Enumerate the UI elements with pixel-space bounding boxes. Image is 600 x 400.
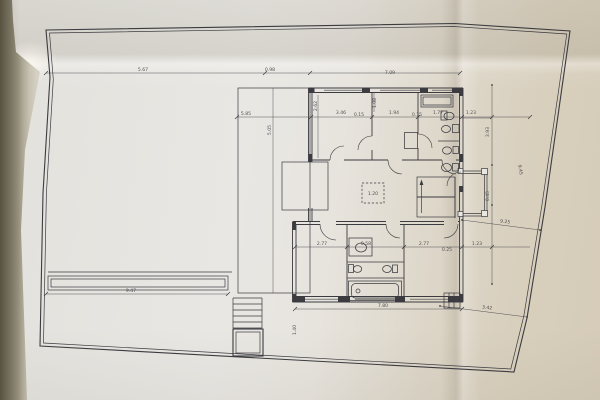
dimension-label: 2.77	[317, 241, 327, 247]
floor-plan-drawing: 5.670.987.095.853.460.151.940.151.771.23…	[0, 0, 600, 400]
dimension-label: 0.15	[412, 112, 422, 118]
planter-wall	[48, 272, 232, 290]
dimension-label: 7.80	[378, 303, 388, 309]
bathtub	[349, 281, 402, 301]
dimension-label: 5.67	[138, 67, 148, 73]
bidet-bowl	[383, 266, 392, 273]
dimension-labels: 5.670.987.095.853.460.151.940.151.771.23…	[126, 67, 524, 335]
toilet-bowl	[442, 126, 451, 133]
dimension-label: 1.23	[466, 110, 476, 116]
dimension-label: 3.42	[482, 304, 493, 311]
toilet-bowl	[353, 266, 361, 273]
stair-arrow-icon	[420, 180, 424, 186]
dimension-label: 1.08	[372, 98, 378, 108]
toilet-tank	[349, 265, 354, 273]
bidet-bowl	[443, 147, 452, 154]
dimension-label: 1.94	[389, 110, 399, 116]
dimension-label: 5.85	[241, 111, 251, 117]
dimension-label: 9.45	[516, 164, 524, 175]
exterior-staircase	[238, 88, 310, 293]
dimension-label: 2.62	[313, 101, 319, 111]
bathtub-drain	[356, 289, 360, 293]
dimension-label: 3.93	[485, 127, 491, 137]
dimension-label: 9.25	[500, 218, 511, 225]
dimension-label: 1.40	[292, 325, 298, 335]
dimension-label: 1.77	[433, 110, 443, 116]
dimension-label: 0.98	[265, 67, 275, 73]
dimension-label: 0.45	[485, 191, 491, 201]
bidet-back	[393, 265, 398, 273]
closet	[405, 133, 418, 149]
sink-basin	[444, 112, 454, 120]
wc-tank	[453, 164, 459, 172]
interior-staircase	[417, 177, 455, 217]
bidet-back	[453, 147, 459, 154]
toilet-tank	[453, 125, 460, 133]
dimension-label: 3.46	[336, 110, 346, 116]
balcony-railing	[458, 169, 488, 217]
dimension-label: 1.23	[472, 241, 482, 247]
dimension-label: 0.15	[354, 112, 364, 118]
dimension-label: 2.77	[419, 241, 429, 247]
dimension-label: 0.25	[442, 247, 452, 253]
dimension-label: 9.47	[126, 288, 136, 294]
dimension-label: 5.05	[267, 125, 273, 135]
dimension-label: 1.20	[368, 191, 378, 197]
dimension-label: 7.09	[385, 70, 395, 76]
patio-brick-hatch	[282, 162, 328, 210]
dimension-label: 0.58	[361, 241, 371, 247]
bathroom-bottom-fixtures	[349, 238, 402, 301]
garden-stair-and-room	[233, 298, 263, 356]
